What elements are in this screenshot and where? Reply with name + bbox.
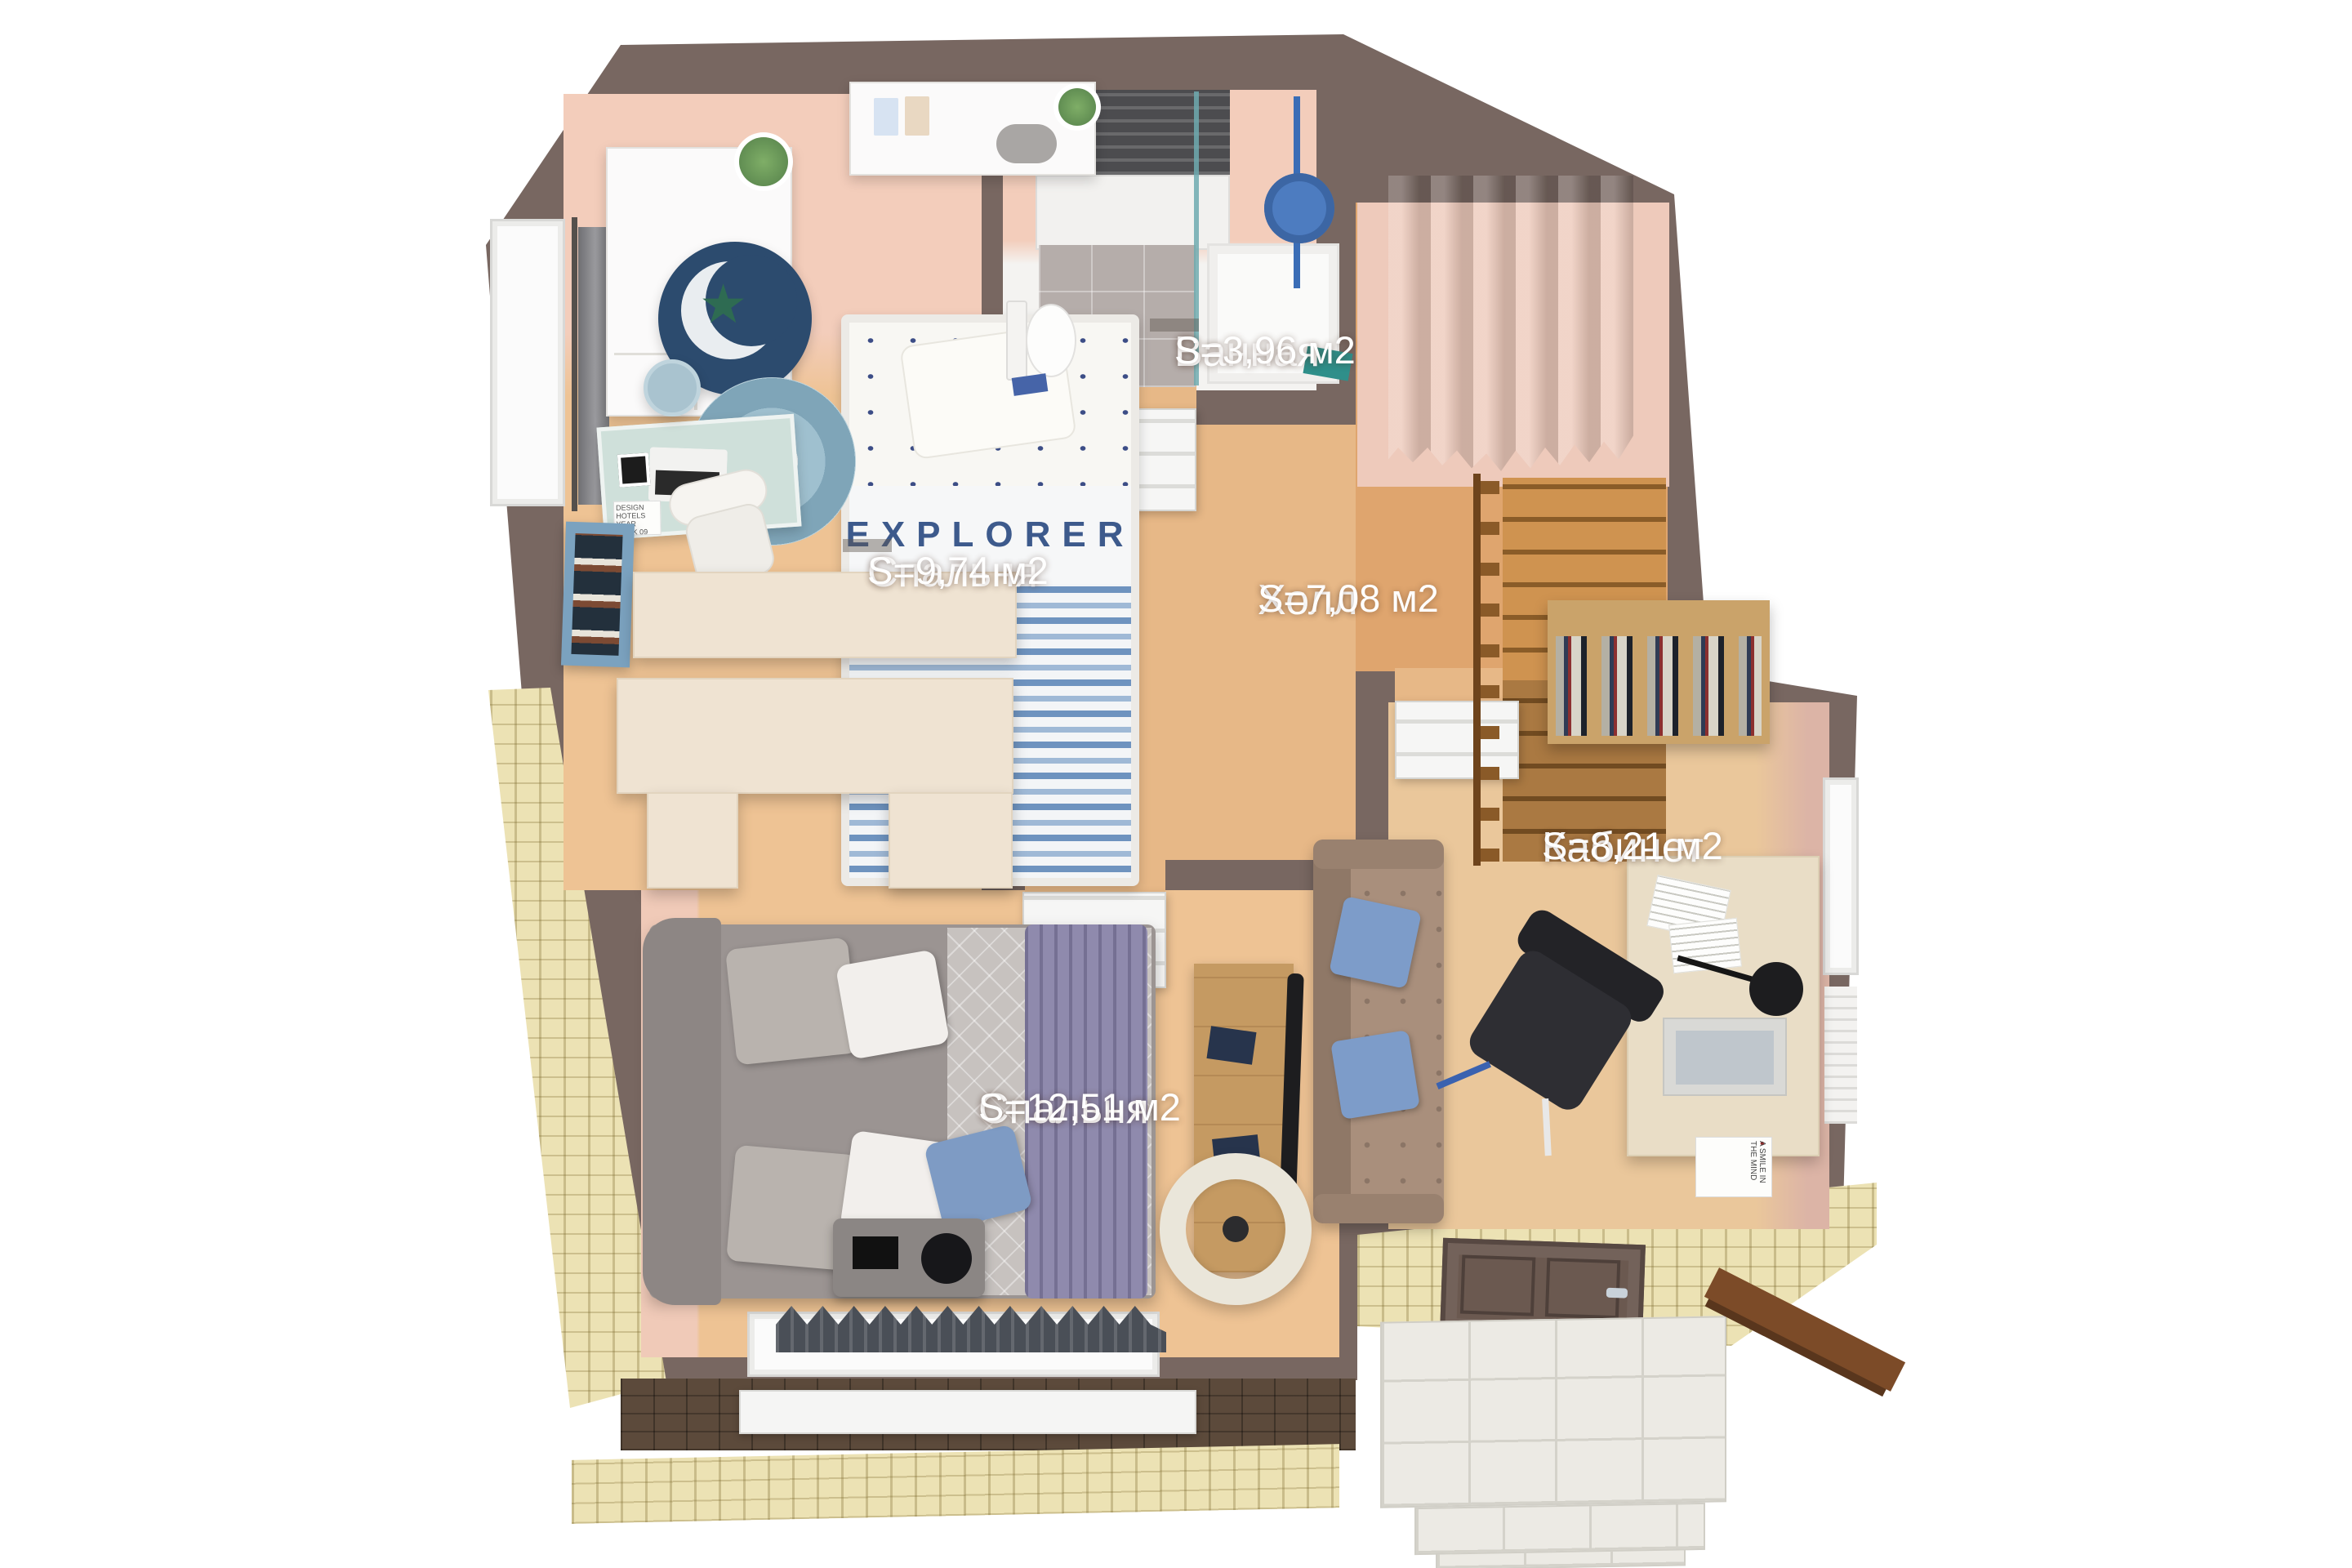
room-area: S=12,51 м2 (978, 1082, 1181, 1132)
wardrobe-lower (617, 678, 1013, 794)
room-area: S=9,74 м2 (867, 546, 1049, 595)
kids-window (490, 219, 565, 506)
shelf-book (874, 98, 898, 136)
label-kids-bedroom: Спальня S=9,74 м2 (843, 539, 892, 552)
shelf-book (905, 96, 929, 136)
desk-lamp (1749, 962, 1803, 1016)
floor-lamp-ring (1160, 1153, 1312, 1305)
wardrobe-column-left (647, 792, 738, 889)
porch-tiles (1380, 1316, 1726, 1508)
toilet-tank (1006, 301, 1027, 381)
grey-pillow (725, 938, 859, 1066)
toilet (1026, 304, 1076, 377)
sofa-pillow (1330, 1030, 1420, 1120)
stairs-handrail (1473, 474, 1481, 866)
headboard (643, 918, 721, 1305)
lower-floor-window (739, 1390, 1196, 1434)
curtain-rail (572, 217, 577, 511)
sofa-armrest-bottom (1313, 1194, 1444, 1223)
floorplan-render: EXPLORER ★ DESIGN HOTELS YEAR BOOK 09 (0, 0, 2352, 1568)
sofa-backrest (1313, 840, 1351, 1223)
plant-pot (739, 137, 788, 186)
shower-head (1264, 173, 1334, 243)
sofa-armrest-top (1313, 840, 1444, 869)
porch-step-2 (1436, 1548, 1686, 1568)
hippo-toy (996, 124, 1057, 163)
shelf-plant (1058, 88, 1096, 126)
bed-bench (833, 1218, 985, 1297)
door-handle (1606, 1288, 1628, 1298)
white-pillow (835, 949, 950, 1059)
blue-bookshelf (561, 522, 635, 668)
office-door (1395, 701, 1519, 779)
star-motif: ★ (699, 273, 747, 336)
room-area: S=8,21 м2 (1542, 821, 1723, 871)
stairwell-curtain (1388, 176, 1633, 471)
round-tray (921, 1233, 972, 1284)
office-window (1823, 777, 1859, 975)
wardrobe-column-right (889, 792, 1013, 889)
label-bathroom: Ванная S=3,96 м2 (1150, 318, 1199, 332)
waste-bin (644, 359, 701, 416)
stairs-balusters (1480, 478, 1499, 862)
black-book (853, 1236, 898, 1269)
mouse-pad (617, 452, 651, 488)
door-panel (1460, 1255, 1535, 1316)
room-area: S=3,96 м2 (1174, 325, 1356, 375)
sofa-pillow (1329, 896, 1422, 989)
porch-step-1 (1414, 1503, 1705, 1555)
office-sofa (1313, 840, 1444, 1223)
office-radiator (1824, 987, 1857, 1124)
office-bookcase (1548, 600, 1770, 744)
media-box (1206, 1026, 1256, 1064)
floor-lamp-hub (1223, 1216, 1249, 1242)
bathroom-window-sill (1036, 175, 1230, 250)
bookcase-books (1556, 636, 1762, 736)
office-book-title: A SMILE IN THE MIND (1748, 1141, 1766, 1196)
roof-straw-band-bottom (572, 1444, 1339, 1524)
room-area: S=7,08 м2 (1258, 573, 1439, 623)
office-laptop (1663, 1018, 1787, 1096)
office-book: ● A SMILE IN THE MIND (1695, 1137, 1772, 1197)
